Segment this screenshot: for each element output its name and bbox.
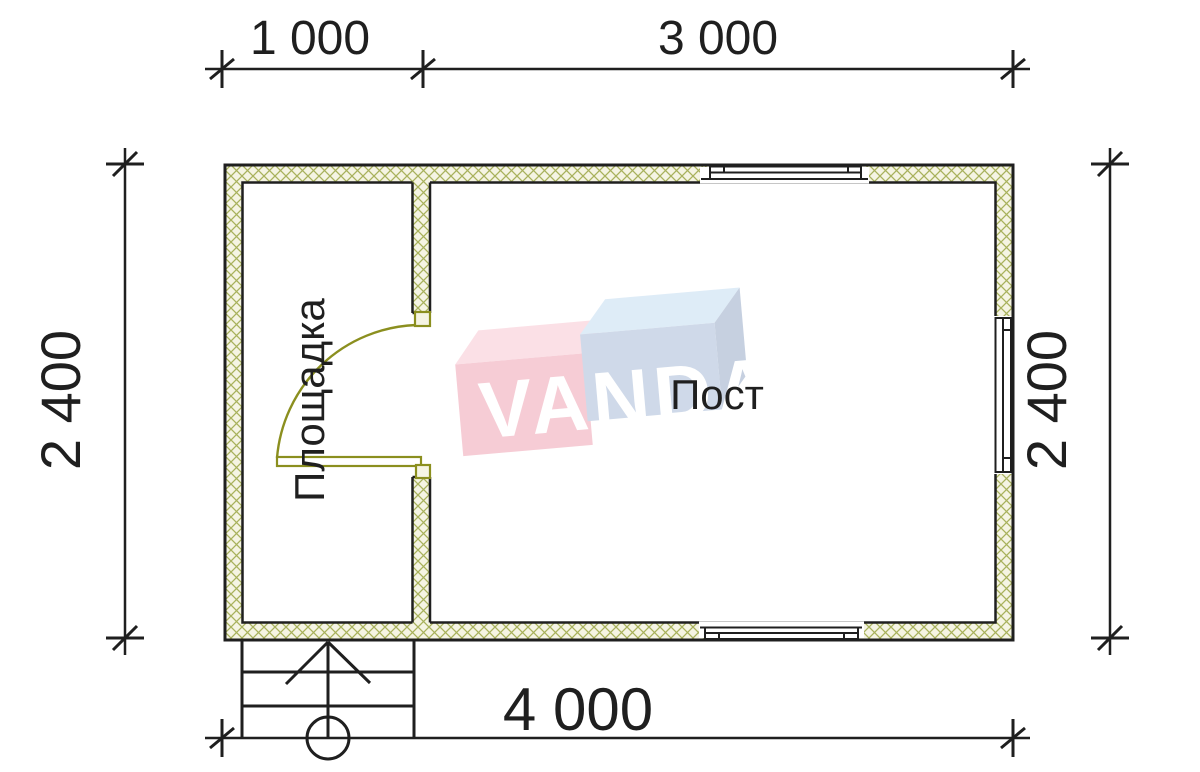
- dim-label-right: 2 400: [1015, 330, 1078, 470]
- floor-plan: VANDA 1 000 3 000 4 000 2 400 2 400 Площ…: [0, 0, 1200, 772]
- dim-label-top-left: 1 000: [250, 12, 370, 65]
- door-jamb-top: [415, 312, 430, 326]
- dim-label-left: 2 400: [29, 330, 92, 470]
- window-bottom: [699, 622, 864, 640]
- door-jamb-bottom: [416, 465, 430, 478]
- entrance-stairs: [242, 640, 414, 759]
- floor-plan-drawing: VANDA 1 000 3 000 4 000 2 400 2 400 Площ…: [0, 0, 1200, 772]
- dim-label-top-right: 3 000: [658, 12, 778, 65]
- window-bottom-gap: [699, 622, 864, 639]
- window-top: [700, 167, 869, 184]
- partition-wall-bottom-fill: [413, 477, 431, 638]
- dim-label-bottom: 4 000: [503, 676, 653, 743]
- room-label-post: Пост: [670, 371, 764, 418]
- window-top-gap: [700, 167, 869, 184]
- room-label-platform: Площадка: [286, 298, 333, 502]
- window-right: [994, 316, 1012, 474]
- partition-wall-top-fill: [413, 167, 431, 313]
